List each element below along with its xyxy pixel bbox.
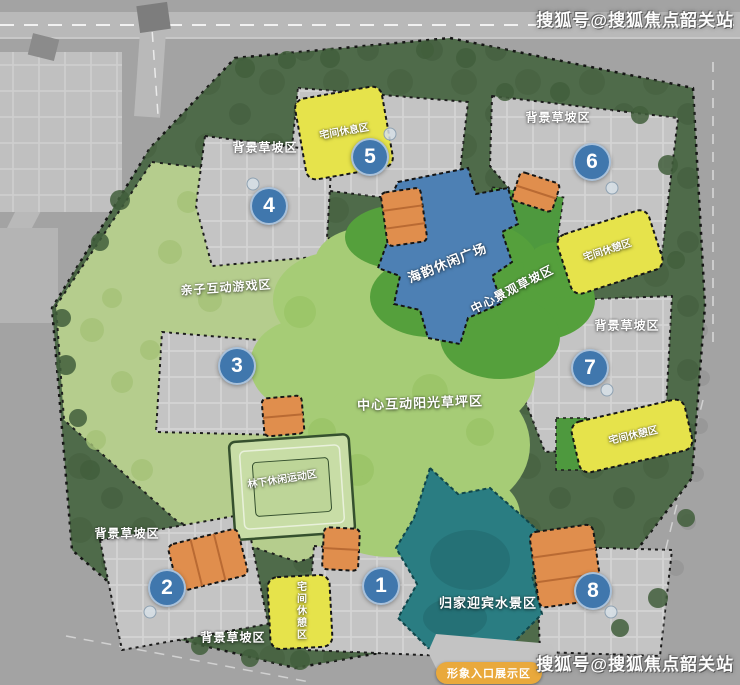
building-number-6: 6 bbox=[573, 143, 611, 181]
unit-badge bbox=[384, 128, 397, 141]
unit-badge bbox=[601, 384, 614, 397]
building-number-3: 3 bbox=[218, 347, 256, 385]
building-number-4: 4 bbox=[250, 187, 288, 225]
label-entrance-display: 形象入口展示区 bbox=[436, 662, 542, 684]
building-number-1: 1 bbox=[362, 567, 400, 605]
label-bg-slope-topleft: 背景草坡区 bbox=[232, 139, 297, 156]
unit-badge bbox=[605, 606, 618, 619]
label-welcome-water: 归家迎宾水景区 bbox=[439, 593, 537, 612]
label-rest-area-bottom: 宅间休憩区 bbox=[293, 581, 308, 641]
unit-badge bbox=[247, 178, 260, 191]
label-bg-slope-right: 背景草坡区 bbox=[594, 317, 659, 334]
label-bg-slope-bottom: 背景草坡区 bbox=[200, 629, 265, 646]
building-number-5: 5 bbox=[351, 138, 389, 176]
watermark-top: 搜狐号@搜狐焦点韶关站 bbox=[536, 6, 734, 31]
unit-badge bbox=[144, 606, 157, 619]
building-number-8: 8 bbox=[574, 572, 612, 610]
watermark-bottom: 搜狐号@搜狐焦点韶关站 bbox=[536, 650, 734, 675]
unit-badge bbox=[606, 182, 619, 195]
label-bg-slope-topright: 背景草坡区 bbox=[525, 109, 590, 126]
site-plan-image: 1 2 3 4 5 6 7 8 背景草坡区 背景草坡区 背景草坡区 背景草坡区 … bbox=[0, 0, 740, 685]
building-number-7: 7 bbox=[571, 349, 609, 387]
label-bg-slope-bottomleft: 背景草坡区 bbox=[94, 525, 159, 542]
building-number-2: 2 bbox=[148, 569, 186, 607]
